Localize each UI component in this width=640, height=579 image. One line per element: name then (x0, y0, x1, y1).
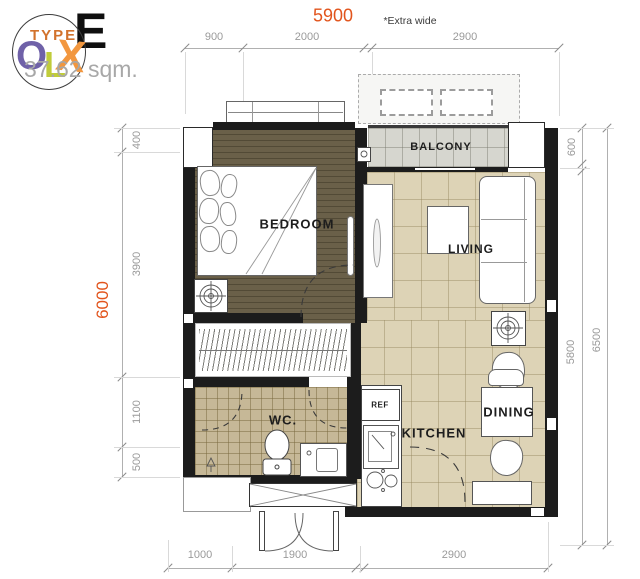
dim-left-seg2: 3900 (131, 252, 143, 276)
balcony-slider (415, 168, 475, 170)
extension-line (114, 128, 180, 129)
entry-door-leaf (333, 511, 339, 551)
dim-right-total: 6500 (591, 328, 603, 352)
logo-block: TYPE E O L X 37.62 sqm. (0, 0, 140, 100)
extension-line (114, 477, 180, 478)
dim-top-total: 5900 (313, 6, 353, 27)
ac-unit (440, 89, 493, 116)
balcony-drain-box (357, 147, 371, 162)
dim-top-seg1: 900 (205, 31, 223, 43)
shoe-cabinet (249, 483, 357, 507)
wall-kitchen-corner (347, 377, 361, 387)
extension-line (560, 128, 614, 129)
dim-line-right-inner (582, 128, 583, 545)
dim-line-left (122, 128, 123, 477)
dining-bench (472, 481, 532, 505)
room-label-wc: WC. (269, 413, 297, 428)
entry-door-leaf (259, 511, 265, 551)
dim-bottom-seg3: 2900 (442, 549, 466, 561)
column-marker (531, 508, 544, 516)
dim-top-note: *Extra wide (383, 15, 436, 27)
extension-line (114, 447, 180, 448)
dim-left-seg4: 500 (131, 453, 143, 471)
column-marker (184, 379, 193, 388)
room-label-balcony: BALCONY (410, 141, 471, 153)
side-table (491, 311, 526, 346)
wall-bottom (345, 507, 558, 517)
wall-bedroom-top (213, 122, 355, 130)
extension-line (360, 546, 361, 572)
room-label-bedroom: BEDROOM (260, 217, 335, 232)
column-marker (547, 300, 556, 312)
column-top-right (508, 122, 545, 168)
kitchen-sink-basin (368, 431, 392, 462)
exterior-ledge (183, 477, 251, 512)
extension-line (559, 52, 560, 116)
dim-bottom-seg2: 1900 (283, 549, 307, 561)
dim-top-seg2: 2000 (295, 31, 319, 43)
dim-left-seg1: 400 (131, 131, 143, 149)
room-label-kitchen: KITCHEN (402, 426, 467, 441)
extension-line (232, 546, 233, 572)
wall-bedroom-bottom (183, 313, 303, 323)
wall-right (545, 128, 558, 517)
dim-right-seg2: 5800 (565, 340, 577, 364)
sofa-cushion-line (481, 219, 527, 220)
extension-line (548, 522, 549, 572)
column-top-left (183, 127, 213, 168)
wc-basin (316, 448, 338, 472)
column-marker (547, 418, 556, 430)
extension-line (114, 377, 180, 378)
wall-wc-right (347, 387, 361, 479)
bedroom-door-threshold (303, 313, 355, 323)
wall-closet-bottom (183, 377, 309, 387)
sofa-cushion-line (481, 262, 527, 263)
closet-rail-line (199, 350, 347, 351)
column-marker (184, 314, 193, 323)
extension-line (185, 52, 186, 114)
dim-bottom-seg1: 1000 (188, 549, 212, 561)
dim-line-bottom (168, 568, 548, 569)
dim-top-seg3: 2900 (453, 31, 477, 43)
extension-line (560, 168, 590, 169)
extension-line (560, 545, 614, 546)
dim-line-right-outer (607, 128, 608, 545)
dim-right-seg1: 600 (566, 138, 578, 156)
dim-left-seg3: 1100 (131, 400, 143, 424)
room-label-dining: DINING (483, 405, 535, 420)
dim-left-total: 6000 (93, 281, 113, 319)
bedside-table (194, 279, 228, 313)
area-label: 37.62 sqm. (24, 56, 138, 83)
balcony-rail (368, 125, 508, 128)
sofa-back-line (524, 178, 525, 302)
floor-plan-page: TYPE E O L X 37.62 sqm. 5900 *Extra wide… (0, 0, 640, 579)
ac-unit (380, 89, 433, 116)
extension-line (114, 152, 180, 153)
window-glass-line (228, 112, 343, 113)
extension-line (168, 540, 169, 572)
dining-chair (488, 369, 524, 386)
bedroom-tv (347, 216, 354, 276)
tv-console (363, 184, 393, 298)
entrance-double-door-arcs (265, 513, 333, 551)
sofa (479, 176, 536, 304)
room-label-living: LIVING (448, 242, 494, 256)
room-label-ref: REF (371, 401, 389, 410)
